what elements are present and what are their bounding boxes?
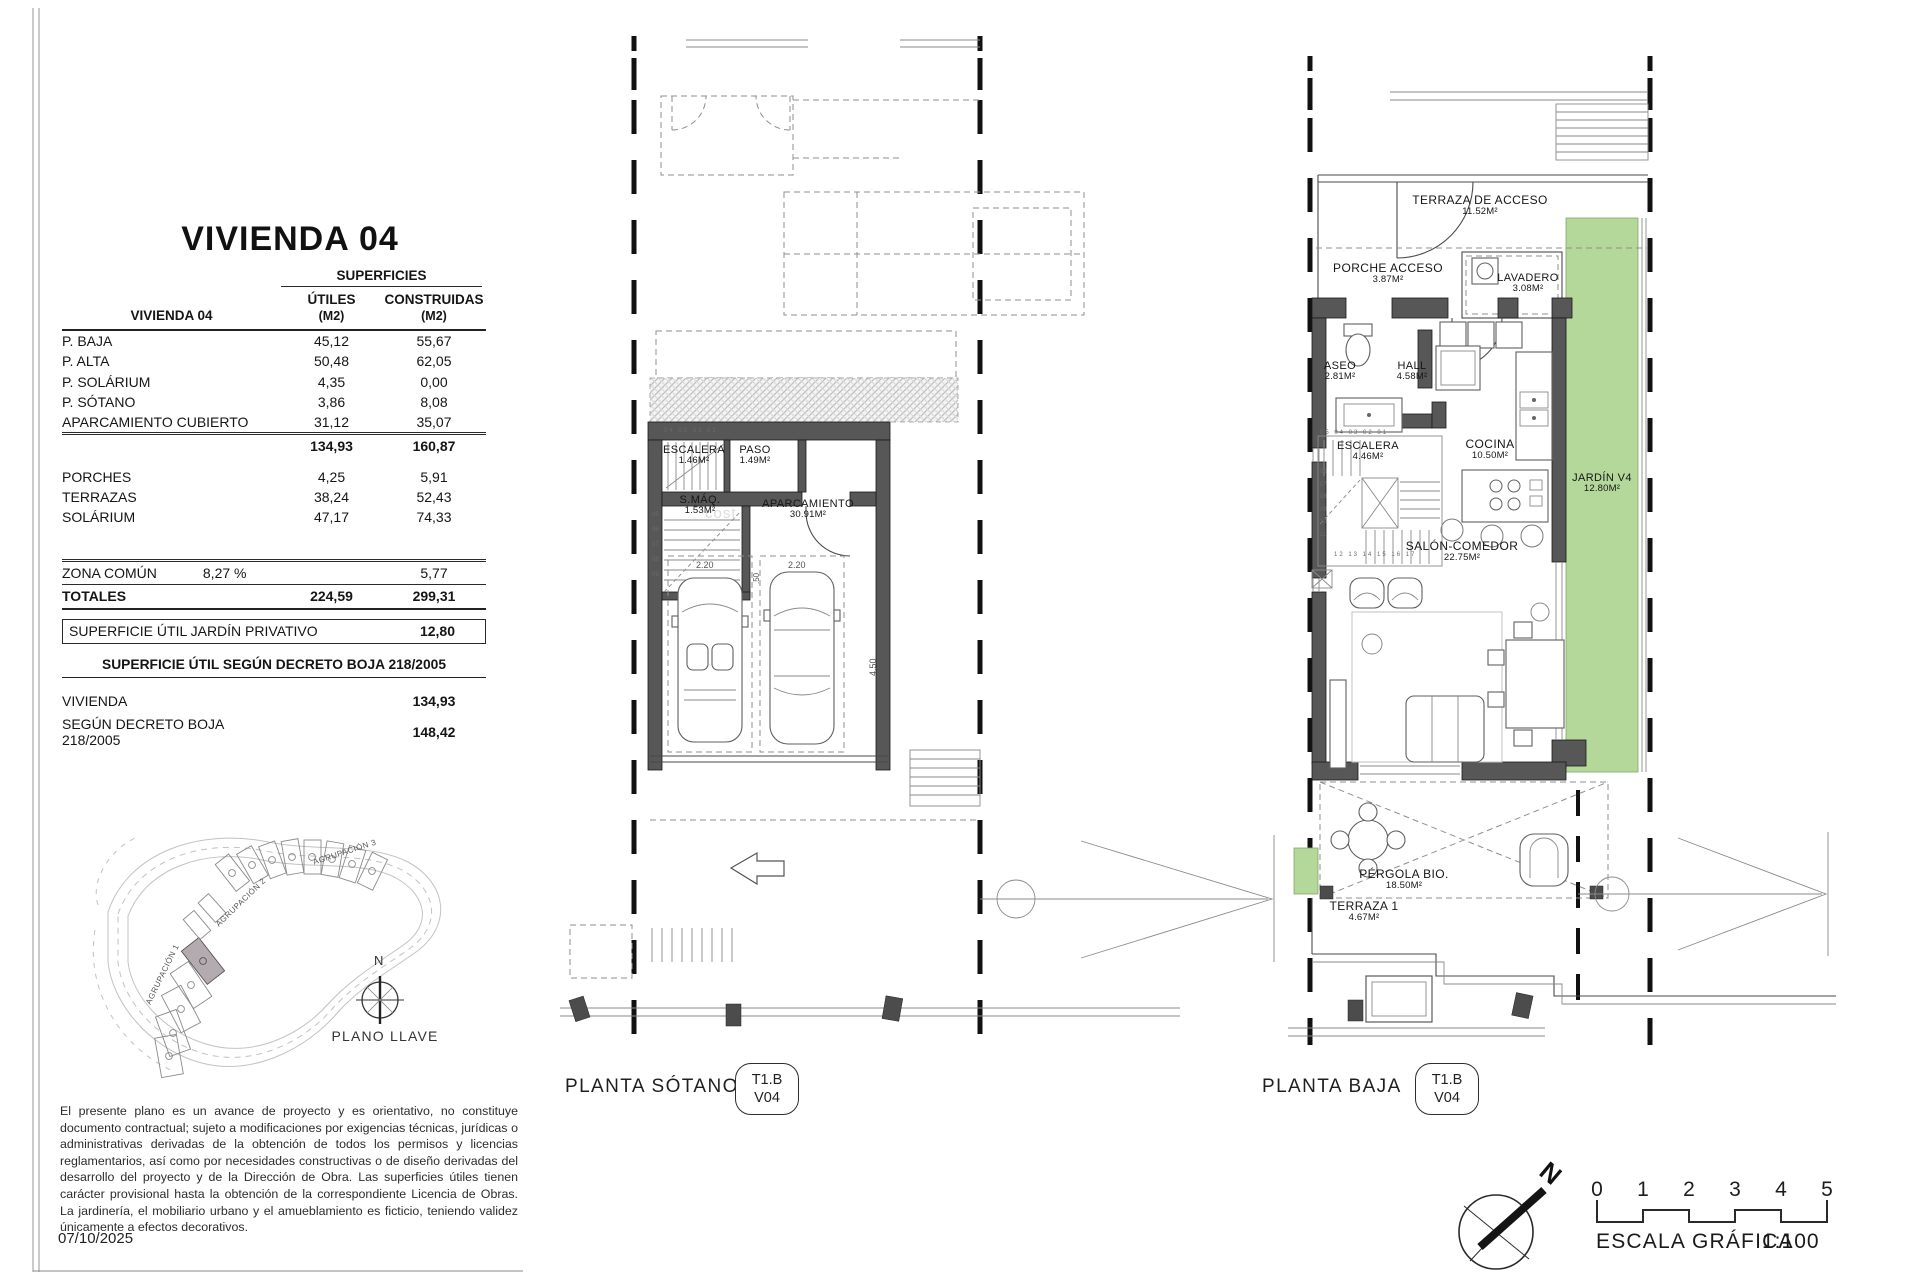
room-label-aseo: ASEO2.81M² [1324, 360, 1356, 383]
site-north-compass [356, 976, 404, 1024]
stair-numbers-baja-top: 05 04 03 02 01 [1320, 430, 1388, 436]
surface-table: SUPERFICIES VIVIENDA 04 ÚTILES(M2) CONST… [62, 268, 486, 746]
room-label-terraza-acceso: TERRAZA DE ACCESO11.52M² [1412, 194, 1548, 218]
dim-450: 4.50 [868, 658, 878, 676]
decreto-row: VIVIENDA134,93 [62, 686, 486, 716]
plan-code-sotano: T1.BV04 [735, 1063, 799, 1115]
scale-tick: 1 [1631, 1178, 1655, 1202]
car-convertible-icon [672, 578, 748, 742]
jardin-privativo-box: SUPERFICIE ÚTIL JARDÍN PRIVATIVO 12,80 [62, 619, 486, 644]
room-label-porche: PORCHE ACCESO3.87M² [1333, 262, 1443, 286]
plan-title-sotano: PLANTA SÓTANO [565, 1076, 739, 1098]
room-label-aparcamiento: APARCAMIENTO30.91M² [762, 498, 854, 521]
disclaimer-text: El presente plano es un avance de proyec… [60, 1103, 518, 1236]
site-plan-caption: PLANO LLAVE [330, 1028, 440, 1044]
table-zona-comun-row: ZONA COMÚN8,27 % 5,77 [62, 559, 486, 584]
room-label-salon: SALÓN-COMEDOR22.75M² [1406, 540, 1519, 564]
scale-bar [1597, 1200, 1827, 1222]
room-label-jardin: JARDÍN V412.80M² [1572, 472, 1632, 495]
sotano-upper-dashed [656, 40, 1084, 378]
baja-living-furniture [1330, 578, 1564, 768]
stair-numbers-sotano-top: 04 03 02 01 [664, 428, 718, 434]
baja-neighbour-gate [1578, 832, 1828, 956]
sotano-neighbour-gate [980, 835, 1274, 962]
stair-numbers-sotano-left: 05 06 07 08 09 [652, 508, 659, 583]
table-header-row: VIVIENDA 04 ÚTILES(M2) CONSTRUIDAS(M2) [62, 287, 486, 331]
scale-tick: 5 [1815, 1178, 1839, 1202]
sotano-boundary [632, 36, 983, 1042]
room-label-pergola: PÉRGOLA BIO.18.50M² [1359, 868, 1449, 892]
decreto-header: SUPERFICIE ÚTIL SEGÚN DECRETO BOJA 218/2… [62, 657, 486, 678]
room-label-terraza1: TERRAZA 14.67M² [1330, 900, 1399, 924]
table-row: APARCAMIENTO CUBIERTO31,1235,07 [62, 412, 486, 432]
scale-tick: 4 [1769, 1178, 1793, 1202]
table-group-header: SUPERFICIES [281, 268, 482, 287]
column-header-construidas: CONSTRUIDAS(M2) [382, 292, 486, 323]
sotano-hatch-band [650, 378, 958, 422]
scale-ratio: 1:100 [1762, 1230, 1820, 1254]
page-title: VIVIENDA 04 [90, 220, 490, 259]
table-row: P. BAJA45,1255,67 [62, 331, 486, 351]
table-row: P. ALTA50,4862,05 [62, 351, 486, 371]
table-row: P. SÓTANO3,868,08 [62, 392, 486, 412]
dim-spot2: 2.20 [788, 560, 806, 570]
plan-baja-drawing [1288, 56, 1836, 1045]
room-label-hall: HALL4.58M² [1397, 360, 1428, 383]
room-label-smaq: S.MÁQ.1.53M² [680, 494, 721, 517]
date-label: 07/10/2025 [58, 1230, 133, 1247]
car-sedan-icon [764, 572, 840, 744]
decreto-row: SEGÚN DECRETO BOJA 218/2005148,42 [62, 716, 486, 746]
dim-spot1: 2.20 [696, 560, 714, 570]
scale-tick: 3 [1723, 1178, 1747, 1202]
plan-title-baja: PLANTA BAJA [1262, 1076, 1402, 1098]
room-label-escalera-sotano: ESCALERA1.46M² [663, 444, 725, 467]
scale-tick: 0 [1585, 1178, 1609, 1202]
column-header-utiles: ÚTILES(M2) [281, 292, 382, 323]
room-label-escalera-baja: ESCALERA4.46M² [1337, 440, 1399, 463]
main-compass [1459, 1190, 1544, 1269]
room-label-paso: PASO1.49M² [739, 444, 770, 467]
plan-sotano-drawing [560, 36, 1274, 1042]
dim-50: .50 [752, 573, 761, 584]
scale-tick: 2 [1677, 1178, 1701, 1202]
table-row: PORCHES4,255,91 [62, 467, 486, 487]
site-north-label: N [374, 953, 383, 968]
architectural-plan-sheet: VIVIENDA 04 SUPERFICIES VIVIENDA 04 ÚTIL… [0, 0, 1920, 1280]
room-label-cocina: COCINA10.50M² [1465, 438, 1514, 462]
stair-numbers-baja-left: 06 07 08 09 10 11 [1320, 466, 1327, 541]
column-header-vivienda: VIVIENDA 04 [62, 308, 281, 324]
stair-numbers-baja-bottom: 12 13 14 15 16 17 [1334, 552, 1416, 558]
room-label-lavadero: LAVADERO3.08M² [1497, 272, 1558, 295]
baja-kitchen [1436, 322, 1552, 547]
table-totals-row: TOTALES224,59299,31 [62, 584, 486, 610]
table-row: P. SOLÁRIUM4,350,00 [62, 371, 486, 391]
highlighted-unit-04 [181, 938, 224, 985]
table-row: SOLÁRIUM47,1774,33 [62, 507, 486, 527]
baja-roof [1390, 92, 1648, 160]
plan-code-baja: T1.BV04 [1415, 1063, 1479, 1115]
table-row: TERRAZAS38,2452,43 [62, 487, 486, 507]
table-subtotal-row: 134,93160,87 [62, 432, 486, 458]
baja-street [1288, 993, 1545, 1036]
sotano-street [560, 996, 1180, 1026]
ramp-arrow-icon [731, 853, 784, 884]
